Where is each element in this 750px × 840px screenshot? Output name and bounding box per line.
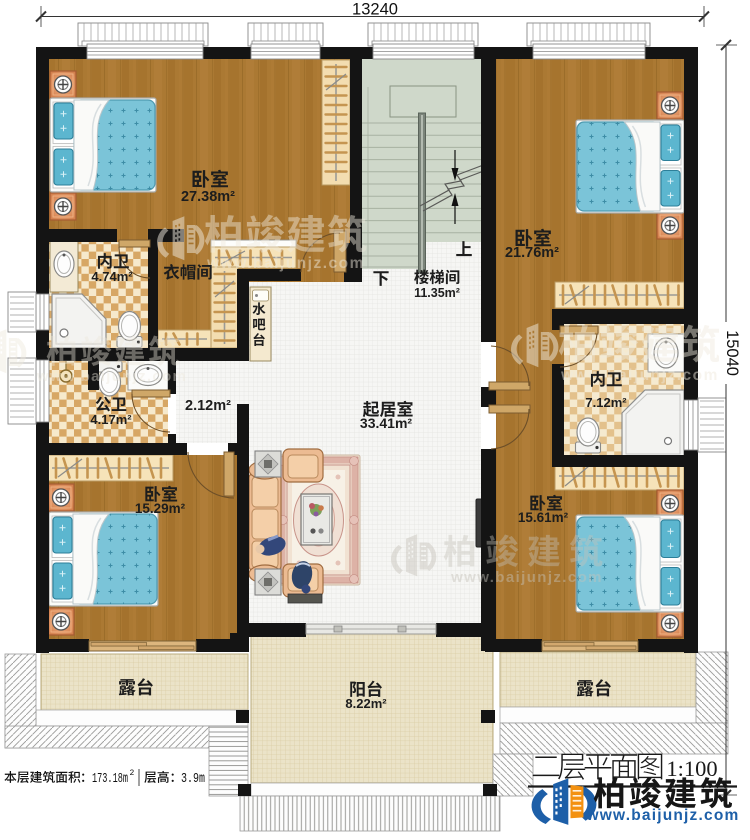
svg-text:173.18m: 173.18m: [92, 772, 128, 787]
svg-text:8.22m²: 8.22m²: [345, 696, 387, 711]
svg-text:4.17m²: 4.17m²: [90, 412, 132, 427]
svg-text:7.12m²: 7.12m²: [585, 395, 627, 410]
svg-text:1:100: 1:100: [666, 756, 717, 781]
svg-text:15040: 15040: [723, 330, 741, 376]
svg-text:15.61m²: 15.61m²: [518, 510, 569, 525]
svg-text:21.76m²: 21.76m²: [505, 245, 559, 261]
svg-text:15.29m²: 15.29m²: [135, 501, 186, 516]
svg-text:2: 2: [130, 769, 135, 778]
svg-text:www.baijunjz.com: www.baijunjz.com: [560, 367, 719, 384]
svg-text:3.9m: 3.9m: [181, 772, 205, 787]
svg-text:11.35m²: 11.35m²: [414, 286, 460, 300]
svg-text:www.baijunjz.com: www.baijunjz.com: [586, 807, 740, 824]
svg-text:4.74m²: 4.74m²: [91, 269, 133, 284]
svg-text:www.baijunjz.com: www.baijunjz.com: [206, 255, 365, 272]
svg-text:27.38m²: 27.38m²: [181, 189, 235, 205]
svg-text:www.baijunjz.com: www.baijunjz.com: [36, 368, 187, 385]
svg-text:www.baijunjz.com: www.baijunjz.com: [450, 569, 603, 586]
svg-text:33.41m²: 33.41m²: [360, 415, 412, 431]
svg-text:2.12m²: 2.12m²: [185, 398, 231, 414]
svg-text:13240: 13240: [352, 1, 398, 19]
